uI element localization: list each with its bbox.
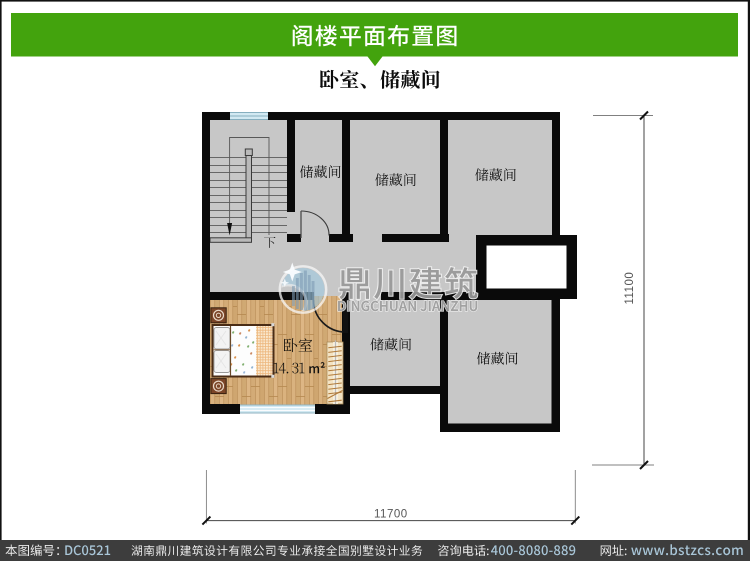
svg-text:11100: 11100: [624, 272, 636, 305]
svg-text:11700: 11700: [374, 509, 408, 521]
